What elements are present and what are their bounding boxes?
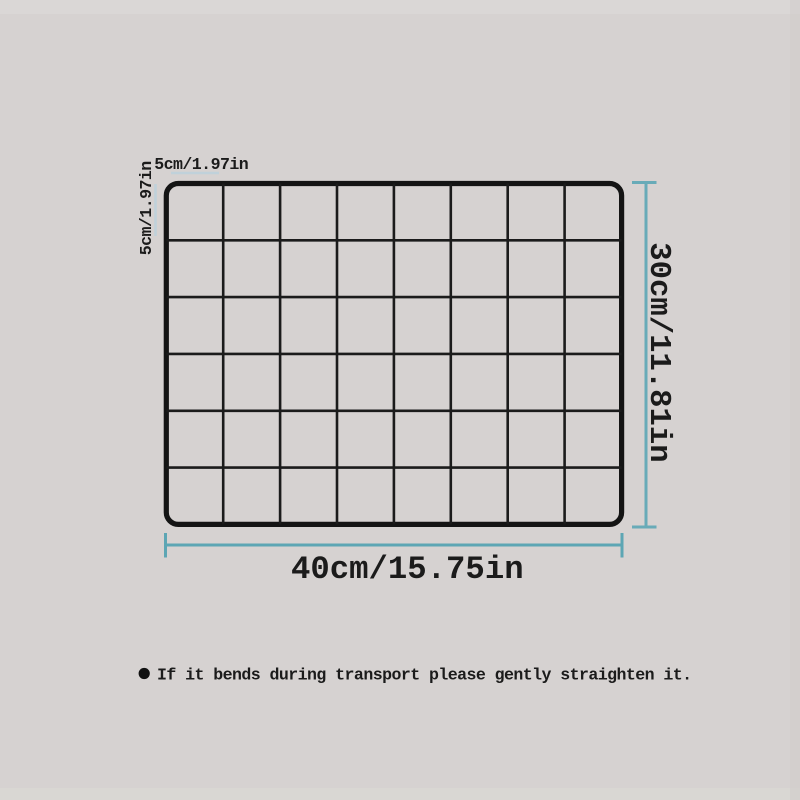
svg-text:30cm/11.81in: 30cm/11.81in [641,242,675,462]
svg-text:40cm/15.75in: 40cm/15.75in [291,551,524,588]
svg-text:5cm/1.97in: 5cm/1.97in [137,161,156,255]
svg-text:5cm/1.97in: 5cm/1.97in [154,155,248,174]
svg-text:If it bends during transport p: If it bends during transport please gent… [157,665,692,684]
